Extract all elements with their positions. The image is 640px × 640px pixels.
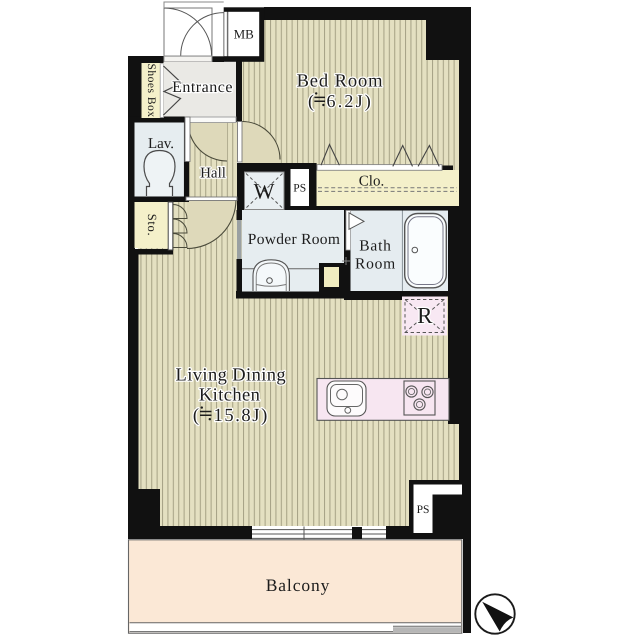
svg-text:Lav.: Lav.	[148, 136, 174, 152]
svg-text:(: (	[308, 91, 314, 111]
svg-text:Shoes Box: Shoes Box	[145, 63, 157, 117]
svg-text:MB: MB	[234, 27, 255, 42]
svg-text:W: W	[254, 179, 275, 204]
svg-text:Balcony: Balcony	[266, 575, 331, 595]
svg-text:(: (	[193, 406, 199, 426]
svg-text:Powder Room: Powder Room	[248, 231, 340, 248]
svg-text:R: R	[417, 303, 433, 328]
svg-text:15.8J): 15.8J)	[214, 406, 269, 426]
svg-text:PS: PS	[417, 504, 430, 516]
svg-text:PS: PS	[293, 183, 306, 195]
svg-text:Sto.: Sto.	[145, 214, 159, 237]
svg-text:Room: Room	[355, 256, 396, 273]
svg-text:Bed Room: Bed Room	[297, 72, 384, 92]
svg-text:6.2J): 6.2J)	[327, 91, 374, 111]
svg-text:Hall: Hall	[200, 166, 226, 182]
svg-text:Clo.: Clo.	[359, 174, 384, 190]
svg-text:Bath: Bath	[359, 238, 391, 255]
svg-text:Kitchen: Kitchen	[199, 386, 260, 406]
svg-text:Entrance: Entrance	[172, 79, 233, 96]
svg-text:Living Dining: Living Dining	[176, 366, 287, 386]
